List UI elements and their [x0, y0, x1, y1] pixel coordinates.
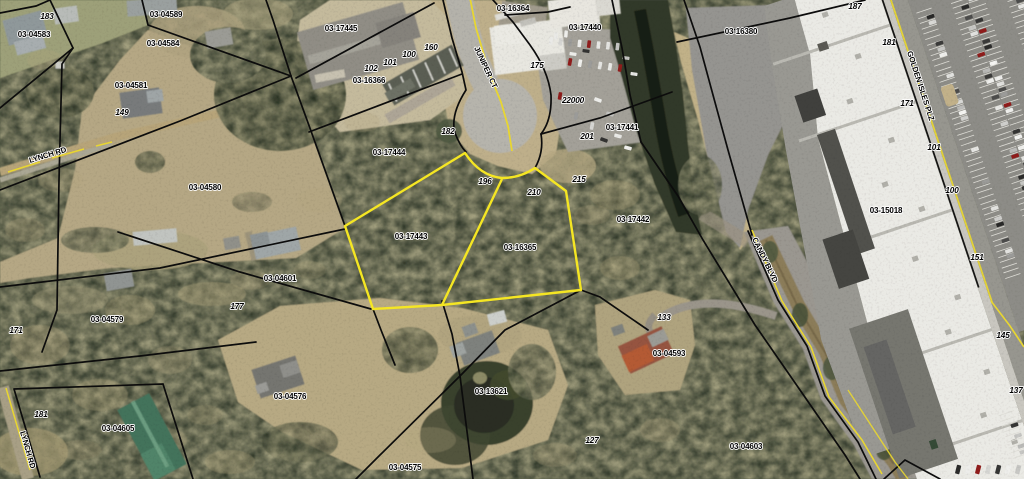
- svg-text:201: 201: [579, 132, 594, 141]
- svg-text:102: 102: [364, 64, 378, 73]
- svg-text:03-04601: 03-04601: [264, 274, 297, 283]
- svg-text:175: 175: [530, 61, 544, 70]
- svg-text:183: 183: [40, 12, 54, 21]
- svg-text:181: 181: [34, 410, 48, 419]
- svg-text:210: 210: [526, 188, 541, 197]
- svg-text:03-17445: 03-17445: [325, 24, 358, 33]
- svg-text:133: 133: [657, 313, 671, 322]
- svg-text:187: 187: [848, 2, 862, 11]
- svg-text:149: 149: [115, 108, 129, 117]
- svg-text:03-16380: 03-16380: [725, 27, 758, 36]
- svg-text:03-04575: 03-04575: [389, 463, 422, 472]
- svg-text:03-04589: 03-04589: [150, 10, 183, 19]
- svg-text:03-16364: 03-16364: [497, 4, 530, 13]
- svg-text:101: 101: [927, 143, 941, 152]
- svg-text:03-17443: 03-17443: [395, 232, 428, 241]
- svg-text:181: 181: [882, 38, 896, 47]
- svg-text:03-04603: 03-04603: [730, 442, 763, 451]
- svg-text:03-15018: 03-15018: [870, 206, 903, 215]
- svg-text:182: 182: [441, 127, 455, 136]
- svg-text:03-16365: 03-16365: [504, 243, 537, 252]
- svg-text:03-17444: 03-17444: [373, 148, 406, 157]
- svg-text:151: 151: [970, 253, 984, 262]
- svg-text:22000: 22000: [561, 96, 585, 105]
- svg-text:03-04584: 03-04584: [147, 39, 180, 48]
- svg-text:127: 127: [585, 436, 599, 445]
- svg-text:145: 145: [996, 331, 1010, 340]
- svg-text:171: 171: [9, 326, 23, 335]
- svg-text:03-17441: 03-17441: [606, 123, 639, 132]
- svg-text:03-17442: 03-17442: [617, 215, 650, 224]
- svg-text:03-04580: 03-04580: [189, 183, 222, 192]
- svg-text:03-04576: 03-04576: [274, 392, 307, 401]
- svg-text:215: 215: [571, 175, 586, 184]
- svg-text:03-04581: 03-04581: [115, 81, 148, 90]
- svg-text:177: 177: [230, 302, 244, 311]
- svg-text:03-04579: 03-04579: [91, 315, 124, 324]
- svg-text:03-04605: 03-04605: [102, 424, 135, 433]
- svg-text:03-16366: 03-16366: [353, 76, 386, 85]
- svg-text:03-13621: 03-13621: [475, 387, 508, 396]
- svg-text:03-04593: 03-04593: [653, 349, 686, 358]
- svg-text:100: 100: [402, 50, 416, 59]
- svg-text:171: 171: [900, 99, 914, 108]
- svg-text:101: 101: [383, 58, 397, 67]
- svg-text:03-17440: 03-17440: [569, 23, 602, 32]
- svg-text:03-04583: 03-04583: [18, 30, 51, 39]
- svg-text:137: 137: [1009, 386, 1023, 395]
- svg-text:196: 196: [478, 177, 492, 186]
- svg-text:160: 160: [424, 43, 438, 52]
- svg-text:100: 100: [945, 186, 959, 195]
